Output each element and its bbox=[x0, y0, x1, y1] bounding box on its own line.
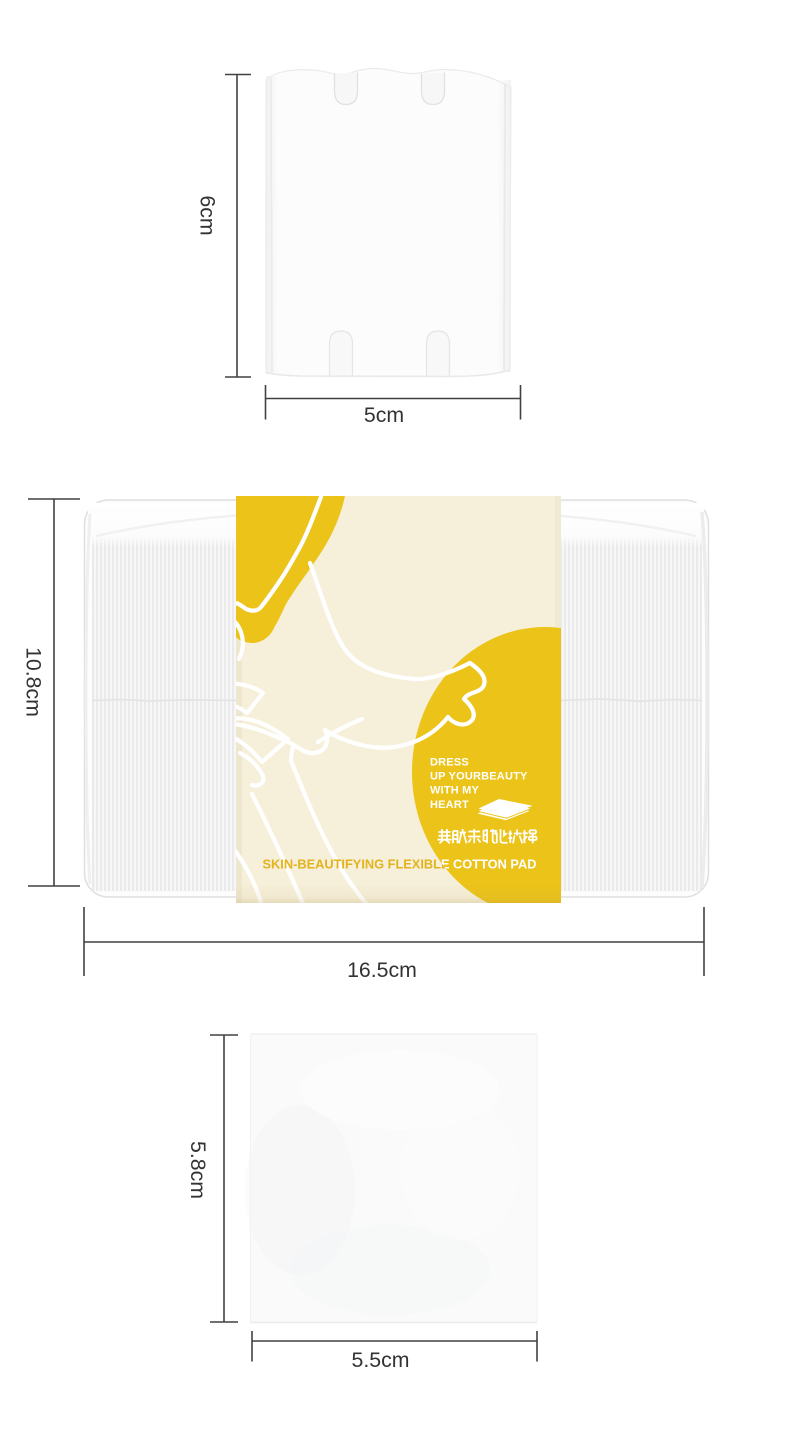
svg-text:10.8cm: 10.8cm bbox=[22, 647, 46, 717]
svg-text:5.5cm: 5.5cm bbox=[352, 1348, 410, 1372]
svg-text:6cm: 6cm bbox=[196, 195, 220, 235]
svg-text:DRESS: DRESS bbox=[430, 756, 469, 768]
svg-text:5cm: 5cm bbox=[364, 403, 404, 427]
svg-text:16.5cm: 16.5cm bbox=[347, 958, 417, 982]
svg-text:WITH MY: WITH MY bbox=[430, 785, 480, 797]
svg-text:HEART: HEART bbox=[430, 799, 469, 811]
svg-text:5.8cm: 5.8cm bbox=[186, 1141, 210, 1199]
svg-text:UP YOURBEAUTY: UP YOURBEAUTY bbox=[430, 771, 528, 783]
